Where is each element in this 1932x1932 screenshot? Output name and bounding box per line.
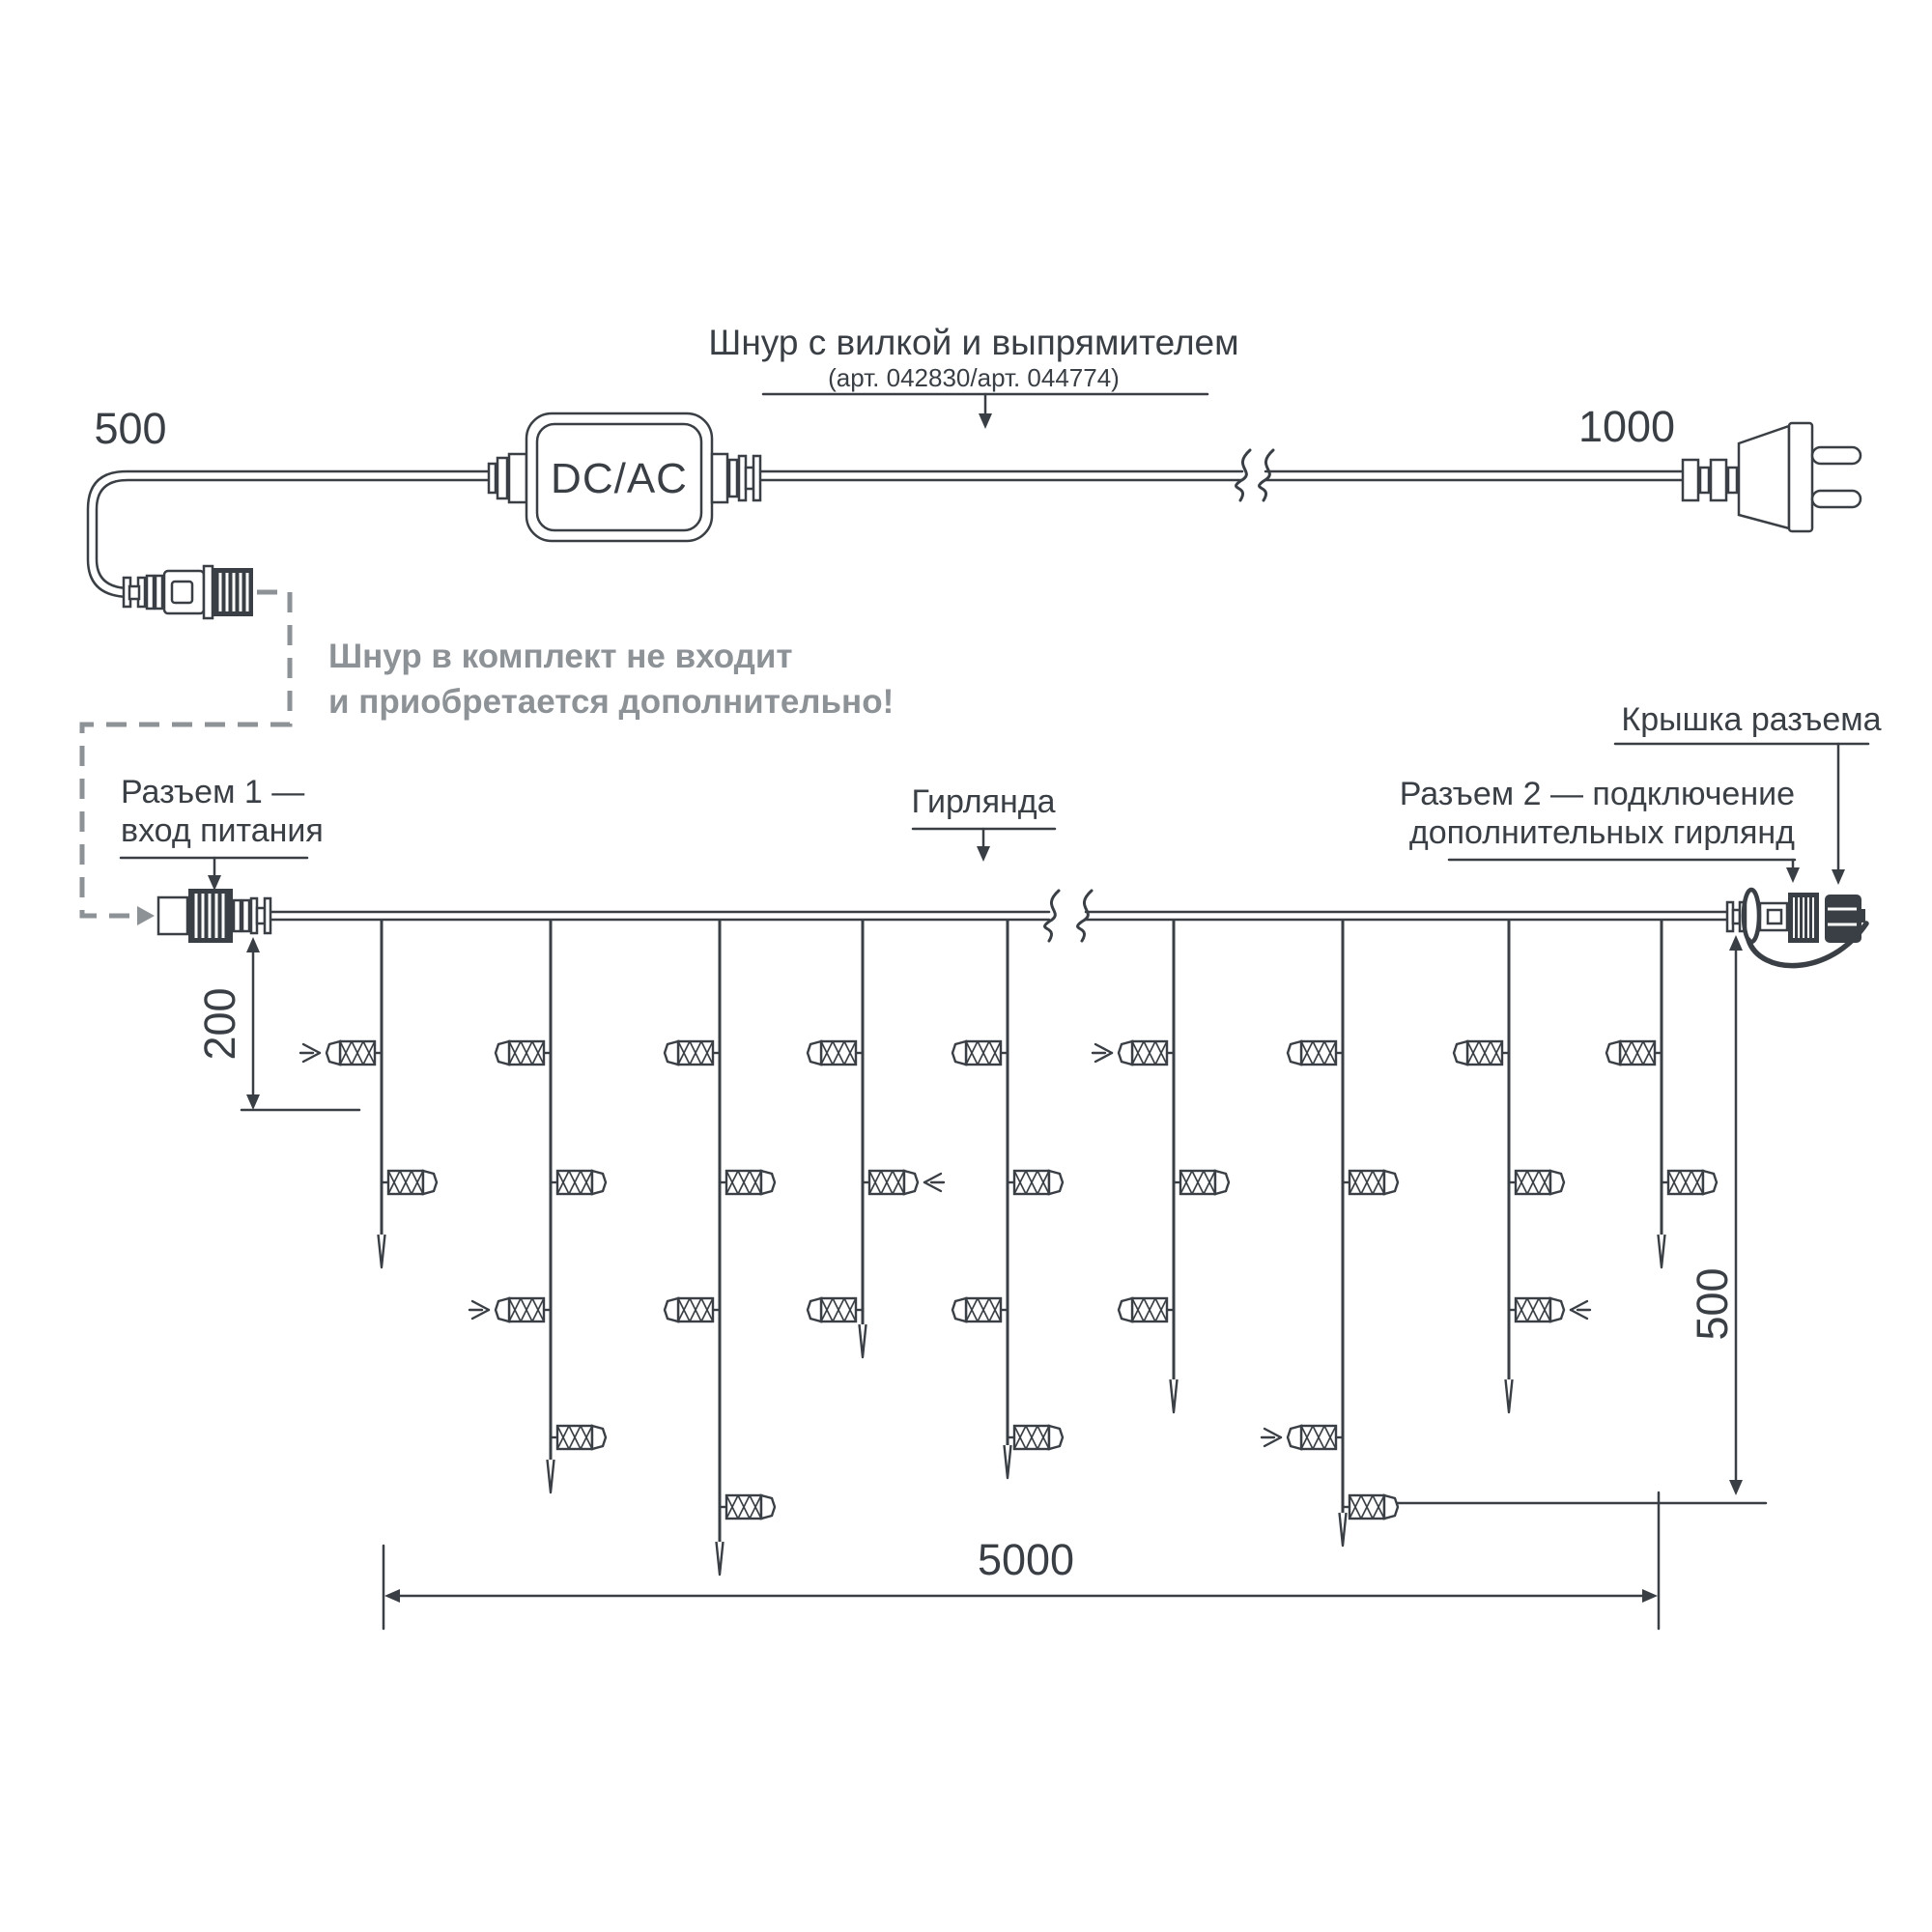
lamp-icon bbox=[1606, 1041, 1662, 1065]
diagram-subtitle: (арт. 042830/арт. 044774) bbox=[828, 363, 1120, 392]
lamp-icon bbox=[952, 1298, 1008, 1321]
garland-drop bbox=[1005, 920, 1011, 1478]
lamp-icon bbox=[1119, 1298, 1174, 1321]
dim-5000-value: 5000 bbox=[978, 1535, 1074, 1584]
lamp-icon bbox=[300, 1041, 382, 1065]
lamp-icon bbox=[1288, 1041, 1343, 1065]
garland-drops bbox=[379, 920, 1665, 1575]
lamp-icon bbox=[720, 1495, 775, 1519]
line-work bbox=[88, 394, 1868, 1629]
cord-left-length-label: 500 bbox=[94, 404, 166, 453]
cap-label: Крышка разъема bbox=[1621, 701, 1881, 738]
garland-drop bbox=[548, 920, 554, 1492]
lamp-icon bbox=[496, 1041, 551, 1065]
lamp-icon bbox=[382, 1171, 437, 1194]
lamp-direction-arrow-icon bbox=[924, 1174, 944, 1191]
note-line-2: и приобретается дополнительно! bbox=[328, 683, 894, 721]
diagram-page: 500 1000 DC/AC Шнур с вилкой и выпрямите… bbox=[0, 0, 1932, 1932]
lamp-icon bbox=[863, 1171, 944, 1194]
connector2-label-line1: Разъем 2 — подключение bbox=[1400, 776, 1795, 812]
garland-drop bbox=[1171, 920, 1178, 1412]
garland-drop bbox=[717, 920, 724, 1575]
lamp-direction-arrow-icon bbox=[1262, 1429, 1281, 1446]
lamp-icon bbox=[1662, 1171, 1717, 1194]
lamp-icon bbox=[551, 1171, 606, 1194]
part-striping bbox=[196, 573, 1857, 938]
garland-drop bbox=[1659, 920, 1665, 1267]
lamp-icon bbox=[1509, 1298, 1590, 1321]
lamp-icon bbox=[808, 1298, 863, 1321]
lamp-icon bbox=[808, 1041, 863, 1065]
connector1-label-line2: вход питания bbox=[121, 812, 324, 849]
garland-drop bbox=[860, 920, 867, 1357]
dashed-guide-arrowhead bbox=[137, 906, 155, 925]
adapter-label: DC/AC bbox=[551, 455, 688, 502]
lamp-direction-arrow-icon bbox=[300, 1044, 320, 1062]
lamp-icon bbox=[469, 1298, 551, 1321]
note-line-1: Шнур в комплект не входит bbox=[328, 638, 793, 675]
lamp-icon bbox=[1174, 1171, 1229, 1194]
garland-drop bbox=[379, 920, 385, 1267]
arrowheads bbox=[208, 413, 1845, 1603]
lamp-direction-arrow-icon bbox=[1571, 1301, 1590, 1319]
garland-label: Гирлянда bbox=[911, 783, 1055, 820]
lamp-icon bbox=[1093, 1041, 1174, 1065]
dashed-guide bbox=[82, 592, 290, 916]
dark-parts bbox=[189, 569, 1864, 942]
connector1-label-line1: Разъем 1 — bbox=[121, 774, 304, 810]
dim-500-value: 500 bbox=[1688, 1267, 1737, 1340]
lamp-icon bbox=[952, 1041, 1008, 1065]
lamp-direction-arrow-icon bbox=[469, 1301, 489, 1319]
lamp-icon bbox=[1343, 1495, 1398, 1519]
garland-drop bbox=[1340, 920, 1347, 1546]
garland-drop bbox=[1506, 920, 1513, 1412]
lamp-icon bbox=[1262, 1426, 1343, 1449]
lamp-icon bbox=[665, 1298, 720, 1321]
dim-200-value: 200 bbox=[195, 987, 244, 1060]
connector2-label-line2: дополнительных гирлянд bbox=[1409, 814, 1795, 851]
lamp-icon bbox=[1454, 1041, 1509, 1065]
garland-wiring-diagram: 500 1000 DC/AC Шнур с вилкой и выпрямите… bbox=[0, 0, 1932, 1932]
lamp-direction-arrow-icon bbox=[1093, 1044, 1112, 1062]
lamp-icon bbox=[1343, 1171, 1398, 1194]
lamp-icon bbox=[665, 1041, 720, 1065]
lamp-icon bbox=[1008, 1171, 1063, 1194]
cord-right-length-label: 1000 bbox=[1578, 402, 1675, 451]
diagram-graphics bbox=[82, 394, 1868, 1629]
lamp-icon bbox=[720, 1171, 775, 1194]
lamp-icon bbox=[551, 1426, 606, 1449]
lamp-icon bbox=[1008, 1426, 1063, 1449]
diagram-title: Шнур с вилкой и выпрямителем bbox=[708, 323, 1238, 362]
lamp-icon bbox=[1509, 1171, 1564, 1194]
